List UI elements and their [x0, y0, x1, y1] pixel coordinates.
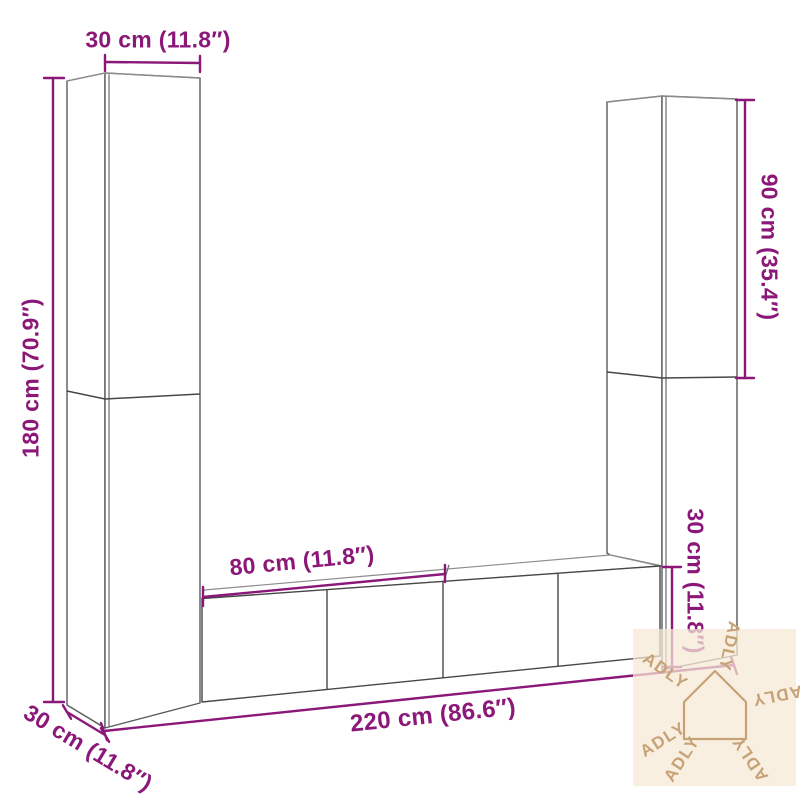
- dim-top-width: [105, 55, 200, 72]
- label-left-height: 180 cm (70.9″): [18, 298, 45, 458]
- left-cabinet: [67, 73, 200, 728]
- dim-left-height: [44, 78, 64, 702]
- left-cabinet-front-face: [105, 73, 200, 728]
- label-top-width: 30 cm (11.8″): [85, 27, 230, 54]
- brand-watermark: ADLY ADLY ADLY ADLY ADLY ADLY: [633, 629, 796, 786]
- furniture-dimension-diagram: 30 cm (11.8″) 180 cm (70.9″) 90 cm (35.4…: [0, 0, 800, 800]
- right-cabinet-side-face: [607, 96, 662, 566]
- house-icon: [633, 629, 796, 786]
- left-cabinet-side-face: [67, 73, 105, 728]
- dim-right-height: [736, 100, 754, 378]
- label-right-height: 90 cm (35.4″): [756, 174, 783, 321]
